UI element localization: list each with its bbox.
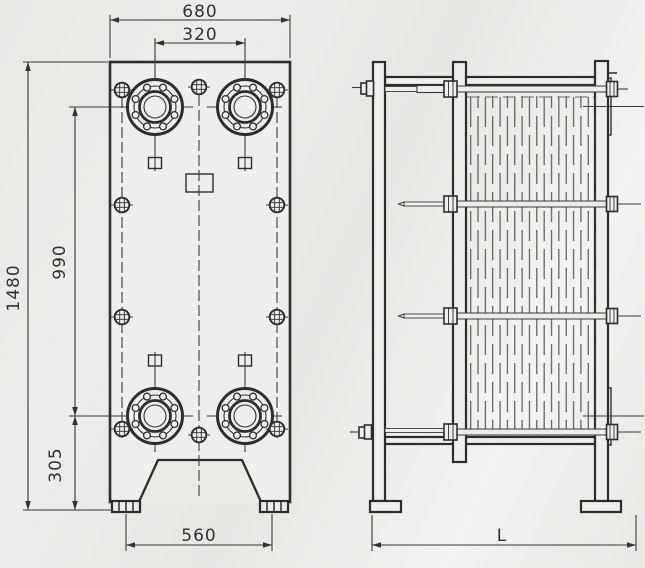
support-column-foot <box>370 501 401 512</box>
carrying-bar <box>385 77 595 85</box>
dim-L: L <box>372 515 636 551</box>
port-flange-bottom-right <box>218 389 273 444</box>
dim-320: 320 <box>155 25 245 46</box>
plate-pack <box>467 96 596 437</box>
dim-680-label: 680 <box>182 2 217 22</box>
heat-exchanger-drawing: 680 320 1480 990 305 560 <box>0 0 645 568</box>
bottom-cutout <box>138 460 262 504</box>
dim-305: 305 <box>46 416 78 510</box>
drawing-canvas: 680 320 1480 990 305 560 <box>0 0 645 568</box>
dim-560-label: 560 <box>181 526 216 546</box>
dim-990-label: 990 <box>50 244 70 279</box>
side-view: L <box>350 61 644 551</box>
port-flange-bottom-left <box>128 389 183 444</box>
port-flange-top-right <box>218 80 273 135</box>
fixed-plate-foot <box>581 501 621 512</box>
dim-1480-label: 1480 <box>4 264 24 311</box>
dim-990: 990 <box>50 107 78 416</box>
dim-320-label: 320 <box>182 25 217 45</box>
pressure-plate <box>453 62 466 462</box>
dim-L-label: L <box>497 526 507 546</box>
dim-305-label: 305 <box>46 447 66 482</box>
left-foot <box>112 501 140 512</box>
right-foot <box>260 501 288 512</box>
front-view: 680 320 1480 990 305 560 <box>4 2 290 551</box>
port-flange-top-left <box>128 80 183 135</box>
guide-bar <box>385 437 595 444</box>
dim-560: 560 <box>126 514 272 551</box>
dim-1480: 1480 <box>4 62 112 510</box>
support-column <box>373 62 385 501</box>
